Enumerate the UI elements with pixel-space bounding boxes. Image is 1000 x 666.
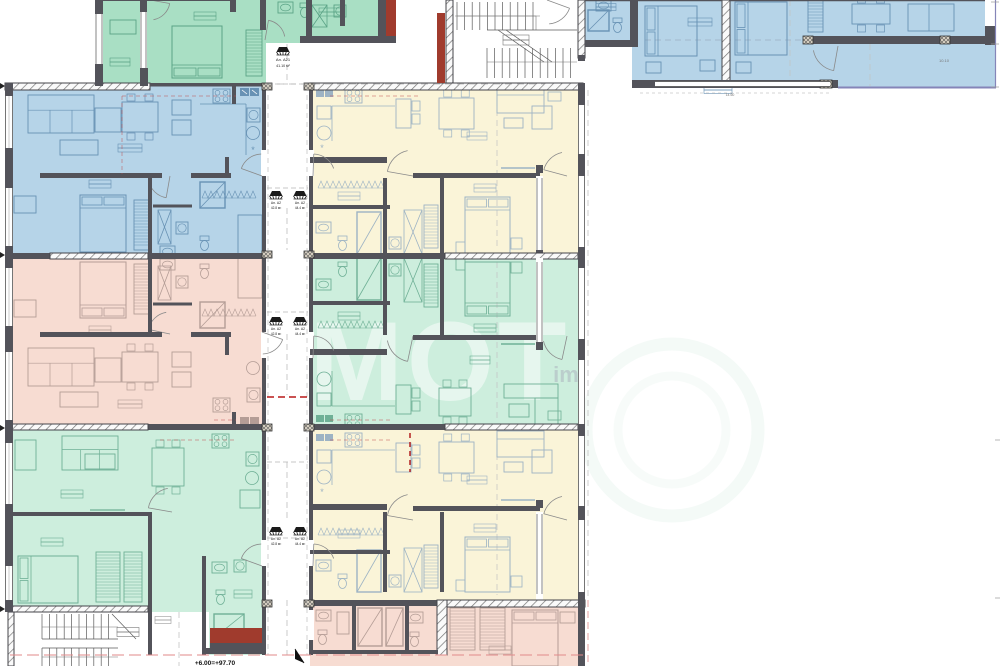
svg-text:Ап. А2: Ап. А2 <box>295 327 305 331</box>
svg-text:Ап. А2: Ап. А2 <box>271 537 281 541</box>
svg-text:+6.00=+97.70: +6.00=+97.70 <box>195 660 236 666</box>
svg-text:Ап. А2: Ап. А2 <box>271 201 281 205</box>
svg-text:*: * <box>320 143 324 153</box>
svg-text:Ап. А2: Ап. А2 <box>295 201 305 205</box>
svg-text:Ап. А2: Ап. А2 <box>295 537 305 541</box>
svg-text:10.10: 10.10 <box>939 58 950 63</box>
svg-text:*: * <box>320 487 324 497</box>
svg-text:im: im <box>553 362 579 387</box>
svg-text:42.8 м²: 42.8 м² <box>271 206 281 210</box>
svg-text:Ап. А2: Ап. А2 <box>271 327 281 331</box>
svg-text:44.4 м²: 44.4 м² <box>295 332 305 336</box>
svg-text:14.60: 14.60 <box>726 93 735 97</box>
svg-text:Ап. А21: Ап. А21 <box>276 57 291 62</box>
svg-text:*: * <box>251 145 255 155</box>
svg-text:41.10 м²: 41.10 м² <box>276 64 290 68</box>
svg-text:44.4 м²: 44.4 м² <box>295 542 305 546</box>
svg-text:44.4 м²: 44.4 м² <box>295 206 305 210</box>
svg-text:42.8 м²: 42.8 м² <box>271 542 281 546</box>
